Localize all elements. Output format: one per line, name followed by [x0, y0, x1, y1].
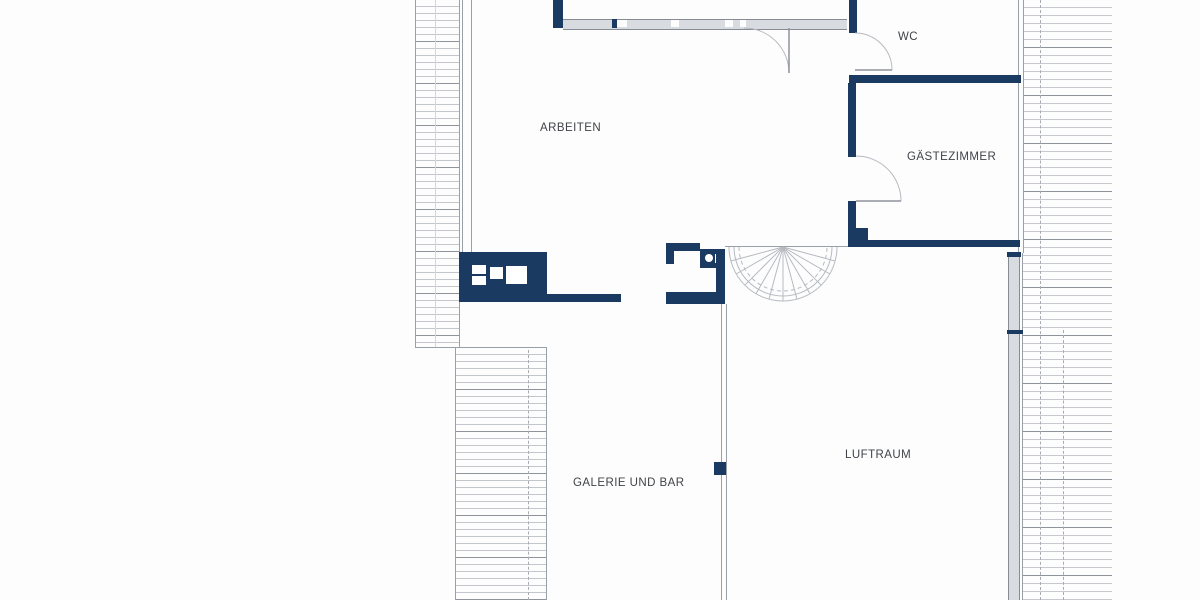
- room-label-galerie-und-bar: GALERIE UND BAR: [573, 477, 685, 489]
- spiral-stair: [727, 246, 839, 304]
- room-label-gaestezimmer: GÄSTEZIMMER: [907, 151, 996, 163]
- roof-hatch-right-block: [1022, 0, 1112, 600]
- glazing-mullion-gap: [740, 20, 746, 27]
- room-label-arbeiten: ARBEITEN: [540, 122, 601, 134]
- roof-hatch-right-dashed-line-1: [1040, 0, 1041, 600]
- wc-door: [855, 33, 893, 71]
- bar-sink-mid: [490, 267, 503, 279]
- shaft-bottom-bar: [666, 292, 725, 304]
- bar-sink-large: [506, 266, 527, 284]
- gaestezimmer-south-wall: [848, 240, 1020, 247]
- wc-west-wall-top: [849, 0, 857, 33]
- wc-gaestezimmer-divider-wall: [849, 75, 1021, 83]
- east-outer-wall: [1018, 0, 1024, 253]
- bar-unit: [459, 252, 547, 302]
- shaft-fixture-circle: [705, 254, 713, 262]
- gaestezimmer-west-wall-upper: [848, 83, 856, 157]
- glazing-mullion-gap: [617, 20, 627, 27]
- roof-hatch-left-dashed-line: [528, 350, 529, 600]
- north-facade-glazing: [563, 19, 847, 30]
- bar-sink-small-lower: [472, 276, 486, 285]
- east-window-band: [1008, 253, 1020, 600]
- room-label-luftraum: LUFTRAUM: [845, 449, 911, 461]
- roof-hatch-left-block: [455, 347, 547, 600]
- room-label-wc: WC: [898, 31, 918, 43]
- glazing-tick: [612, 19, 617, 28]
- bar-sink-small-upper: [472, 265, 486, 274]
- floor-plan: ARBEITEN WC GÄSTEZIMMER GALERIE UND BAR …: [0, 0, 1200, 600]
- gallery-railing: [721, 304, 727, 600]
- bar-wall-arm: [547, 294, 621, 302]
- east-window-tick-top: [1007, 252, 1021, 257]
- gallery-railing-post: [714, 462, 726, 475]
- shaft-left-stub-top: [666, 243, 674, 264]
- gaestezimmer-door: [856, 156, 902, 202]
- roof-hatch-left-strip: [415, 0, 460, 348]
- roof-hatch-right-dashed-line-2: [1063, 330, 1064, 600]
- arbeiten-facade-door: [744, 28, 790, 74]
- glazing-mullion-gap: [725, 20, 733, 27]
- roof-hatch-left-strip-centerline: [435, 0, 436, 347]
- arbeiten-west-glass-wall: [462, 0, 472, 252]
- facade-wall-stub-west: [553, 0, 563, 28]
- east-window-tick-mid: [1007, 330, 1023, 334]
- glazing-mullion-gap: [671, 20, 679, 27]
